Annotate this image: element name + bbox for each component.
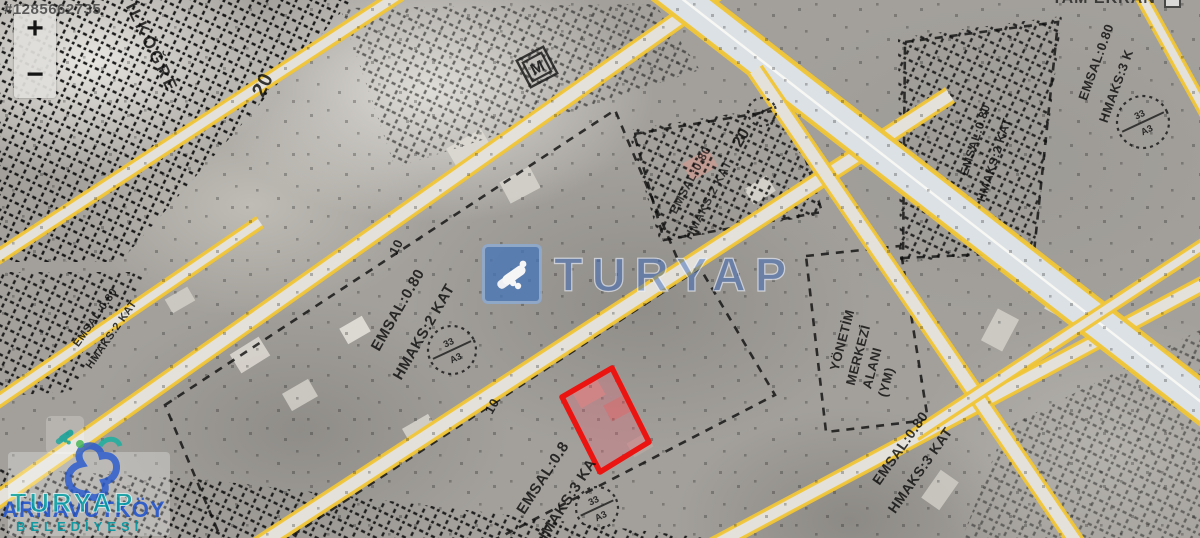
agency-name: TURYAP [10, 488, 136, 519]
municipality-subtitle: BELEDİYESİ [16, 519, 143, 534]
zoom-out-button[interactable]: − [14, 52, 56, 98]
fullscreen-icon [1164, 0, 1181, 8]
turyap-watermark: TURYAP [482, 244, 795, 304]
fullscreen-label: TAM EKRAN [1052, 0, 1156, 8]
map-viewport[interactable]: 33A333A333A3 M İLKÖĞRE201010EMSAL:0.80HM… [0, 0, 1200, 538]
fullscreen-control[interactable]: TAM EKRAN [1052, 0, 1181, 8]
zoom-control[interactable]: + − [14, 6, 56, 98]
listing-id-watermark: #1285662735 [4, 1, 101, 18]
turyap-watermark-text: TURYAP [554, 247, 795, 302]
handshake-icon [482, 244, 542, 304]
footer-logos: ARNAVUTKÖY TURYAP BELEDİYESİ [0, 412, 220, 538]
